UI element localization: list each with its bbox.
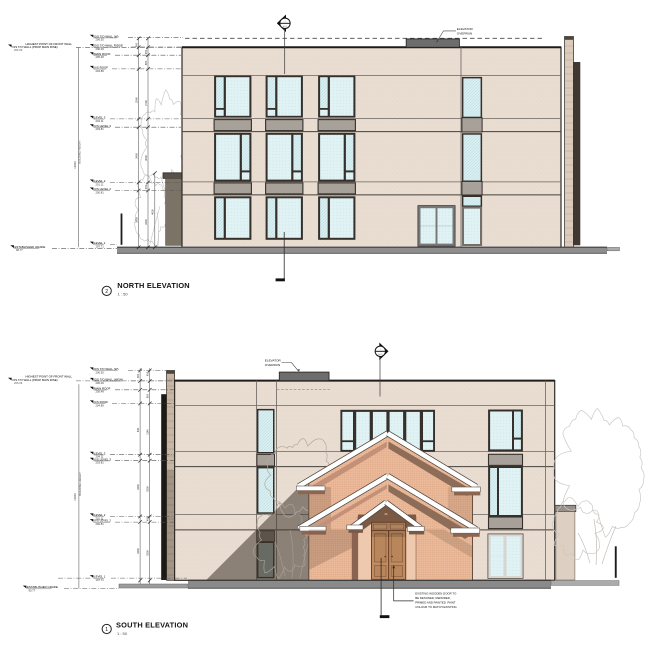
svg-text:2740: 2740 <box>144 100 148 106</box>
svg-text:3430: 3430 <box>144 219 148 225</box>
svg-text:1: 1 <box>105 627 108 633</box>
svg-text:3400: 3400 <box>136 548 140 554</box>
svg-text:BUILDING HEIGHT: BUILDING HEIGHT <box>78 140 82 164</box>
svg-text:3400: 3400 <box>136 484 140 490</box>
svg-text:400: 400 <box>145 516 149 521</box>
svg-text:NORTH ELEVATION: NORTH ELEVATION <box>117 281 190 290</box>
svg-text:3000: 3000 <box>144 155 148 161</box>
svg-text:200.81: 200.81 <box>96 190 105 194</box>
svg-text:450: 450 <box>144 49 148 54</box>
svg-text:OVERRUN: OVERRUN <box>265 363 280 367</box>
svg-text:205.48: 205.48 <box>96 55 105 59</box>
svg-text:3430: 3430 <box>134 217 138 223</box>
svg-text:1 : 50: 1 : 50 <box>117 631 128 636</box>
svg-text:BUILDING HEIGHT: BUILDING HEIGHT <box>78 472 82 496</box>
svg-text:SOUTH ELEVATION: SOUTH ELEVATION <box>116 620 188 629</box>
svg-text:204.11: 204.11 <box>96 119 105 123</box>
svg-text:200.81: 200.81 <box>96 522 105 526</box>
svg-text:BE RETAINED, REPAIRED,: BE RETAINED, REPAIRED, <box>415 596 451 600</box>
svg-text:1 : 50: 1 : 50 <box>118 292 129 297</box>
svg-text:3400: 3400 <box>134 153 138 159</box>
svg-text:840: 840 <box>136 427 140 432</box>
svg-text:EXISTING WOODEN DOOR TO: EXISTING WOODEN DOOR TO <box>415 592 457 596</box>
svg-text:4050: 4050 <box>151 209 155 215</box>
svg-text:3300: 3300 <box>145 550 149 556</box>
svg-text:A000: A000 <box>378 353 382 356</box>
svg-text:197.71: 197.71 <box>96 245 105 249</box>
svg-text:201.11: 201.11 <box>96 182 105 186</box>
svg-text:1140: 1140 <box>145 429 149 435</box>
svg-text:COLOUR TO MATCH EXISTING: COLOUR TO MATCH EXISTING <box>415 605 457 609</box>
svg-text:OVERRUN: OVERRUN <box>457 31 472 35</box>
svg-text:205.48: 205.48 <box>96 390 105 394</box>
svg-text:90.77: 90.77 <box>16 248 23 252</box>
svg-text:206.55: 206.55 <box>96 38 105 42</box>
svg-text:206.55: 206.55 <box>96 370 105 374</box>
svg-text:900: 900 <box>136 373 140 378</box>
svg-text:197.71: 197.71 <box>96 578 105 582</box>
svg-text:90.77: 90.77 <box>29 589 36 593</box>
svg-text:204.89: 204.89 <box>96 403 105 407</box>
svg-text:13600: 13600 <box>73 493 77 501</box>
svg-text:203.81: 203.81 <box>96 127 105 131</box>
svg-text:A000: A000 <box>283 25 287 28</box>
svg-text:206.09: 206.09 <box>14 48 23 52</box>
svg-text:400: 400 <box>144 184 148 189</box>
svg-text:204.89: 204.89 <box>96 69 105 73</box>
svg-text:PRIMED AND PAINTED. PAINT: PRIMED AND PAINTED. PAINT <box>415 601 456 605</box>
svg-text:206.09: 206.09 <box>14 381 23 385</box>
svg-text:800: 800 <box>144 60 148 65</box>
svg-text:13600: 13600 <box>73 161 77 169</box>
svg-text:450: 450 <box>145 371 149 376</box>
svg-text:2540: 2540 <box>134 97 138 103</box>
svg-text:2: 2 <box>105 289 108 295</box>
svg-text:800: 800 <box>145 393 149 398</box>
svg-text:203.81: 203.81 <box>96 461 105 465</box>
svg-text:206.09: 206.09 <box>96 381 105 385</box>
svg-text:3300: 3300 <box>145 486 149 492</box>
svg-text:900: 900 <box>134 42 138 47</box>
